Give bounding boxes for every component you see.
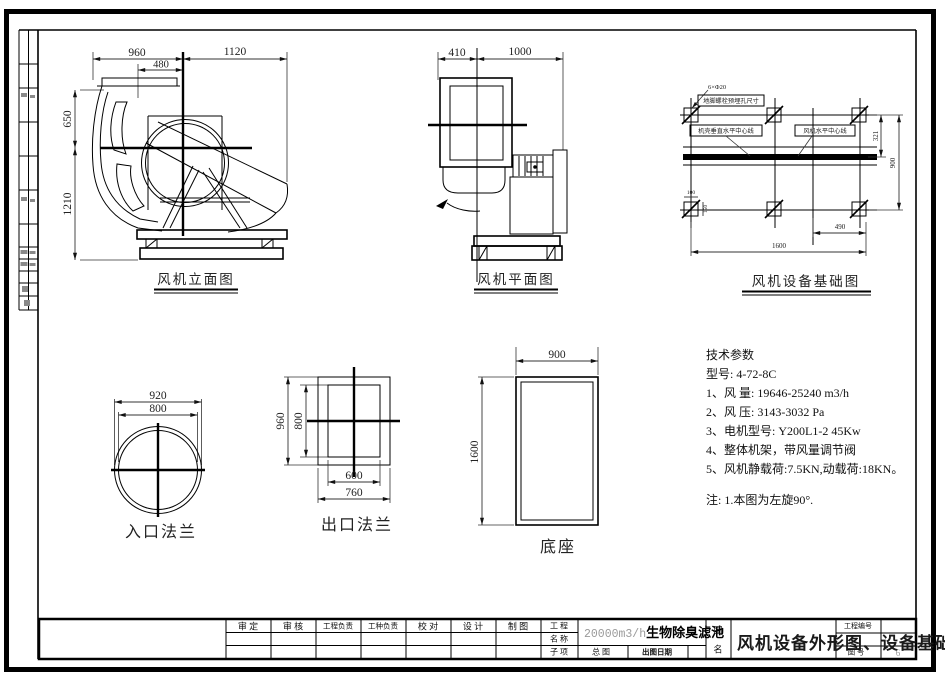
view-foundation: 6×Φ20 地脚螺栓预埋孔尺寸 机壳垂直水平中心线 风机水平中心线 321 90… [680,84,903,295]
view-label-outlet-flange: 出口法兰 [321,516,393,534]
drawing-title: 风机设备外形图、设备基础 [737,629,945,654]
tech-params-item: 1、风 量: 19646-25240 m3/h [706,384,903,403]
view-base: 900 1600 底座 [469,347,598,556]
technical-parameters: 技术参数 型号: 4-72-8C 1、风 量: 19646-25240 m3/h… [706,346,903,510]
callout-bolts: 6×Φ20 [708,84,726,91]
sign-label-project-lead: 工程负责 [323,621,353,632]
drawing-no-label: 图 号 [848,647,865,658]
subitem-value: 总 图 [592,647,610,658]
view-label-inlet-flange: 入口法兰 [125,523,197,541]
view-label-elevation: 风机立面图 [157,272,235,287]
dim-1600: 1600 [772,242,787,250]
dim-900: 900 [548,349,566,361]
view-label-foundation: 风机设备基础图 [752,273,861,289]
drawing-name-label-bottom: 名 [713,643,722,656]
tech-params-item: 2、风 压: 3143-3032 Pa [706,403,903,422]
dim-920: 920 [149,390,167,402]
dim-150: 150 [703,205,709,214]
tech-params-note: 注: 1.本图为左旋90°. [706,491,903,510]
sign-label-drawn: 制 图 [508,620,528,633]
tech-params-item: 5、风机静载荷:7.5KN,动载荷:18KN。 [706,460,903,479]
tech-params-model: 型号: 4-72-8C [706,365,903,384]
dim-1000: 1000 [509,46,532,58]
rotation-arrow [436,199,448,209]
issue-date-label: 出图日期 [642,647,672,658]
tech-params-item: 3、电机型号: Y200L1-2 45Kw [706,422,903,441]
dim-650: 650 [62,110,74,128]
dim-960: 960 [128,47,146,59]
sign-label-approved: 审 定 [238,620,258,633]
dim-800: 800 [149,403,167,415]
sheet-border [7,12,934,670]
cad-sheet: 960 1120 480 650 1210 [0,0,945,682]
project-no-label: 工程编号 [844,621,872,631]
dim-1120: 1120 [224,46,247,58]
project-name-value: 20000m3/h生物除臭滤池 [584,622,724,644]
project-name-prefix: 20000m3/h [584,628,646,641]
view-outlet-flange: 960 800 600 760 出口法兰 [275,367,400,534]
dim-321: 321 [872,130,880,141]
dim-760: 760 [345,487,363,499]
sign-label-designed: 设 计 [463,620,483,633]
sign-label-checked: 校 对 [418,620,438,633]
left-revision-strip [19,30,38,310]
view-fan-plan: 410 1000 风机平面图 [428,46,567,293]
sign-label-trade-lead: 工种负责 [368,621,398,632]
dim-1600: 1600 [469,440,481,463]
dim-960: 960 [275,412,287,430]
project-name-main: 生物除臭滤池 [646,625,724,640]
dim-1210: 1210 [62,192,74,215]
dim-600: 600 [345,470,363,482]
view-label-base: 底座 [540,538,576,556]
project-name-label-bottom: 名 称 [550,634,568,645]
drawing-no-value: 6 [896,648,901,658]
dim-800: 800 [293,412,305,430]
callout-casing-centerline: 机壳垂直水平中心线 [698,127,754,135]
dim-900: 900 [889,157,897,168]
dim-480: 480 [153,60,169,71]
dim-100: 100 [687,190,696,196]
tech-params-item: 4、整体机架，带风量调节阀 [706,441,903,460]
sign-label-reviewed: 审 核 [283,620,303,633]
project-name-label-top: 工 程 [550,621,568,632]
view-inlet-flange: 920 800 入口法兰 [111,390,205,541]
view-fan-elevation: 960 1120 480 650 1210 [62,46,288,293]
tech-params-title: 技术参数 [706,346,903,365]
callout-fan-centerline: 风机水平中心线 [803,127,846,135]
subitem-label: 子 项 [550,647,568,658]
dim-490: 490 [835,223,846,231]
view-label-plan: 风机平面图 [477,272,555,287]
callout-holes: 地脚螺栓预埋孔尺寸 [703,97,759,105]
drawing-name-label-top: 图 [713,624,722,637]
dim-410: 410 [448,47,466,59]
